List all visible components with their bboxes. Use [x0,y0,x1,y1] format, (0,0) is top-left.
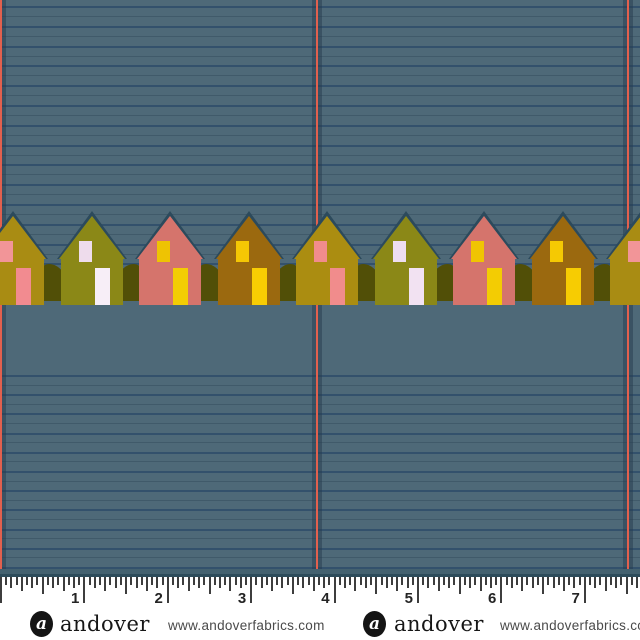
ruler-tick [354,577,356,591]
ruler-tick [511,577,513,588]
house-window [550,241,563,262]
house-mustard-house-pink-door [0,211,48,305]
house-roof [451,216,517,259]
ruler-tick [89,577,91,585]
ruler-tick [141,577,143,585]
ruler-tick [573,577,575,588]
ruler-tick [599,577,601,585]
house-body [610,259,640,305]
house-roof [530,216,596,259]
house-brown-house-yellow-door [528,211,598,305]
ruler-tick [469,577,471,588]
ruler-tick [10,577,12,588]
house-roof [216,216,282,259]
house-body [296,259,358,305]
ruler-tick [381,577,383,585]
ruler-tick [558,577,560,585]
ruler-tick [433,577,435,585]
ruler-tick [47,577,49,585]
ruler-tick [626,577,628,594]
ruler-tick [21,577,23,591]
house-window [0,241,13,262]
house-window [393,241,406,262]
ruler-tick [198,577,200,588]
house-body [218,259,280,305]
ruler-tick [235,577,237,585]
ruler-tick [130,577,132,585]
ruler-tick [162,577,164,585]
house-door [409,268,424,305]
fabric-swatch-photo: 1234567 a andover www.andoverfabrics.com… [0,0,640,640]
ruler-number: 6 [488,590,496,607]
ruler-tick [584,577,586,603]
house-door [566,268,581,305]
brand-url: www.andoverfabrics.com [168,618,325,633]
ruler-number: 4 [321,590,329,607]
ruler-tick [349,577,351,585]
ruler-tick [448,577,450,588]
ruler-tick [568,577,570,585]
house-roof [59,216,125,259]
ruler-number: 5 [405,590,413,607]
ruler-tick [172,577,174,585]
ruler-tick [224,577,226,585]
ruler-tick [240,577,242,588]
house-roof [294,216,360,259]
ruler-tick [31,577,33,588]
ruler-tick [438,577,440,591]
brand-name: andover [60,612,150,636]
house-door [16,268,31,305]
ruler-tick [323,577,325,588]
ruler-tick [417,577,419,603]
ruler-tick [526,577,528,585]
ruler-tick [36,577,38,585]
ruler-tick [328,577,330,585]
ruler-tick [547,577,549,585]
ruler-tick [182,577,184,585]
house-window [157,241,170,262]
brand-name: andover [394,612,484,636]
house-door [252,268,267,305]
house-body [453,259,515,305]
ruler-tick [594,577,596,588]
ruler-tick [375,577,377,594]
ruler-tick [334,577,336,603]
ruler-tick [151,577,153,585]
ruler-tick [57,577,59,585]
ruler-tick [605,577,607,591]
ruler-tick [365,577,367,588]
ruler-tick [360,577,362,585]
ruler-tick [563,577,565,591]
ruler-tick [125,577,127,594]
ruler-tick [401,577,403,585]
ruler-tick [78,577,80,585]
ruler-tick [156,577,158,588]
ruler-tick [495,577,497,585]
ruler-tick [52,577,54,588]
ruler-tick [146,577,148,591]
ruler-tick [302,577,304,588]
ruler-tick [459,577,461,594]
house-door [173,268,188,305]
ruler-tick [109,577,111,585]
ruler-tick [516,577,518,585]
ruler-tick [521,577,523,591]
house-door [487,268,502,305]
house-window [314,241,327,262]
ruler-tick [94,577,96,588]
house-window [79,241,92,262]
ruler-tick [16,577,18,585]
ruler-number: 1 [71,590,79,607]
ruler-tick [480,577,482,591]
house-olive-house-lavender-door [371,211,441,305]
house-body [532,259,594,305]
ruler-tick [63,577,65,591]
ruler-tick [287,577,289,585]
ruler-tick [136,577,138,588]
house-window [471,241,484,262]
ruler-tick [313,577,315,591]
ruler-tick [506,577,508,585]
house-coral-house-yellow-door [135,211,205,305]
ruler-tick [542,577,544,594]
ruler-tick [620,577,622,585]
ruler-tick [422,577,424,585]
ruler-tick [245,577,247,585]
andover-logo-icon: a [363,611,386,637]
ruler-tick [453,577,455,585]
ruler-tick [209,577,211,594]
ruler-tick [42,577,44,594]
ruler-tick [271,577,273,591]
ruler-tick [553,577,555,588]
ruler-tick [255,577,257,585]
ruler-tick [370,577,372,585]
ruler-tick [610,577,612,585]
ruler-tick [188,577,190,591]
house-door [330,268,345,305]
ruler-tick [177,577,179,588]
ruler-tick [631,577,633,585]
ruler-tick [339,577,341,585]
ruler-tick [276,577,278,585]
ruler-tick [73,577,75,588]
ruler-tick [68,577,70,585]
ruler-tick [229,577,231,591]
ruler-tick [193,577,195,585]
ruler-tick [120,577,122,585]
house-door [95,268,110,305]
ruler-tick [412,577,414,585]
ruler-tick [297,577,299,585]
ruler-tick [636,577,638,588]
ruler-tick [214,577,216,585]
ruler-tick [26,577,28,585]
house-window [628,241,640,262]
ruler-number: 2 [154,590,162,607]
andover-logo-icon: a [30,611,53,637]
ruler-tick [386,577,388,588]
house-roof [373,216,439,259]
ruler-tick [615,577,617,588]
ruler-tick [532,577,534,588]
house-mustard-house-pink-door [292,211,362,305]
ruler-tick [589,577,591,585]
house-roof [137,216,203,259]
house-mustard-house-pink-door [606,211,640,305]
ruler-tick [219,577,221,588]
ruler-tick [99,577,101,585]
house-window [236,241,249,262]
ruler-tick [344,577,346,588]
ruler-tick [407,577,409,588]
house-body [139,259,201,305]
ruler-number: 3 [238,590,246,607]
ruler-tick [308,577,310,585]
ruler-tick [281,577,283,588]
ruler-number: 7 [571,590,579,607]
house-coral-house-yellow-door [449,211,519,305]
ruler-tick [537,577,539,585]
brand-url: www.andoverfabrics.com [500,618,640,633]
house-body [375,259,437,305]
ruler-tick [443,577,445,585]
ruler-tick [318,577,320,585]
ruler-tick [464,577,466,585]
ruler-tick [104,577,106,591]
ruler-tick [115,577,117,588]
ruler-tick [474,577,476,585]
ruler-tick [0,577,2,603]
ruler-tick [579,577,581,585]
ruler-tick [250,577,252,603]
ruler-tick [485,577,487,585]
house-body [61,259,123,305]
ruler-tick [5,577,7,585]
ruler-tick [203,577,205,585]
ruler-tick [490,577,492,588]
ruler-tick [83,577,85,603]
ruler-tick [396,577,398,591]
house-brown-house-yellow-door [214,211,284,305]
ruler-tick [500,577,502,603]
ruler-tick [261,577,263,588]
house-olive-house-white-door [57,211,127,305]
ruler-tick [292,577,294,594]
ruler-tick [427,577,429,588]
ruler-tick [167,577,169,603]
ruler-tick [391,577,393,585]
ruler-tick [266,577,268,585]
